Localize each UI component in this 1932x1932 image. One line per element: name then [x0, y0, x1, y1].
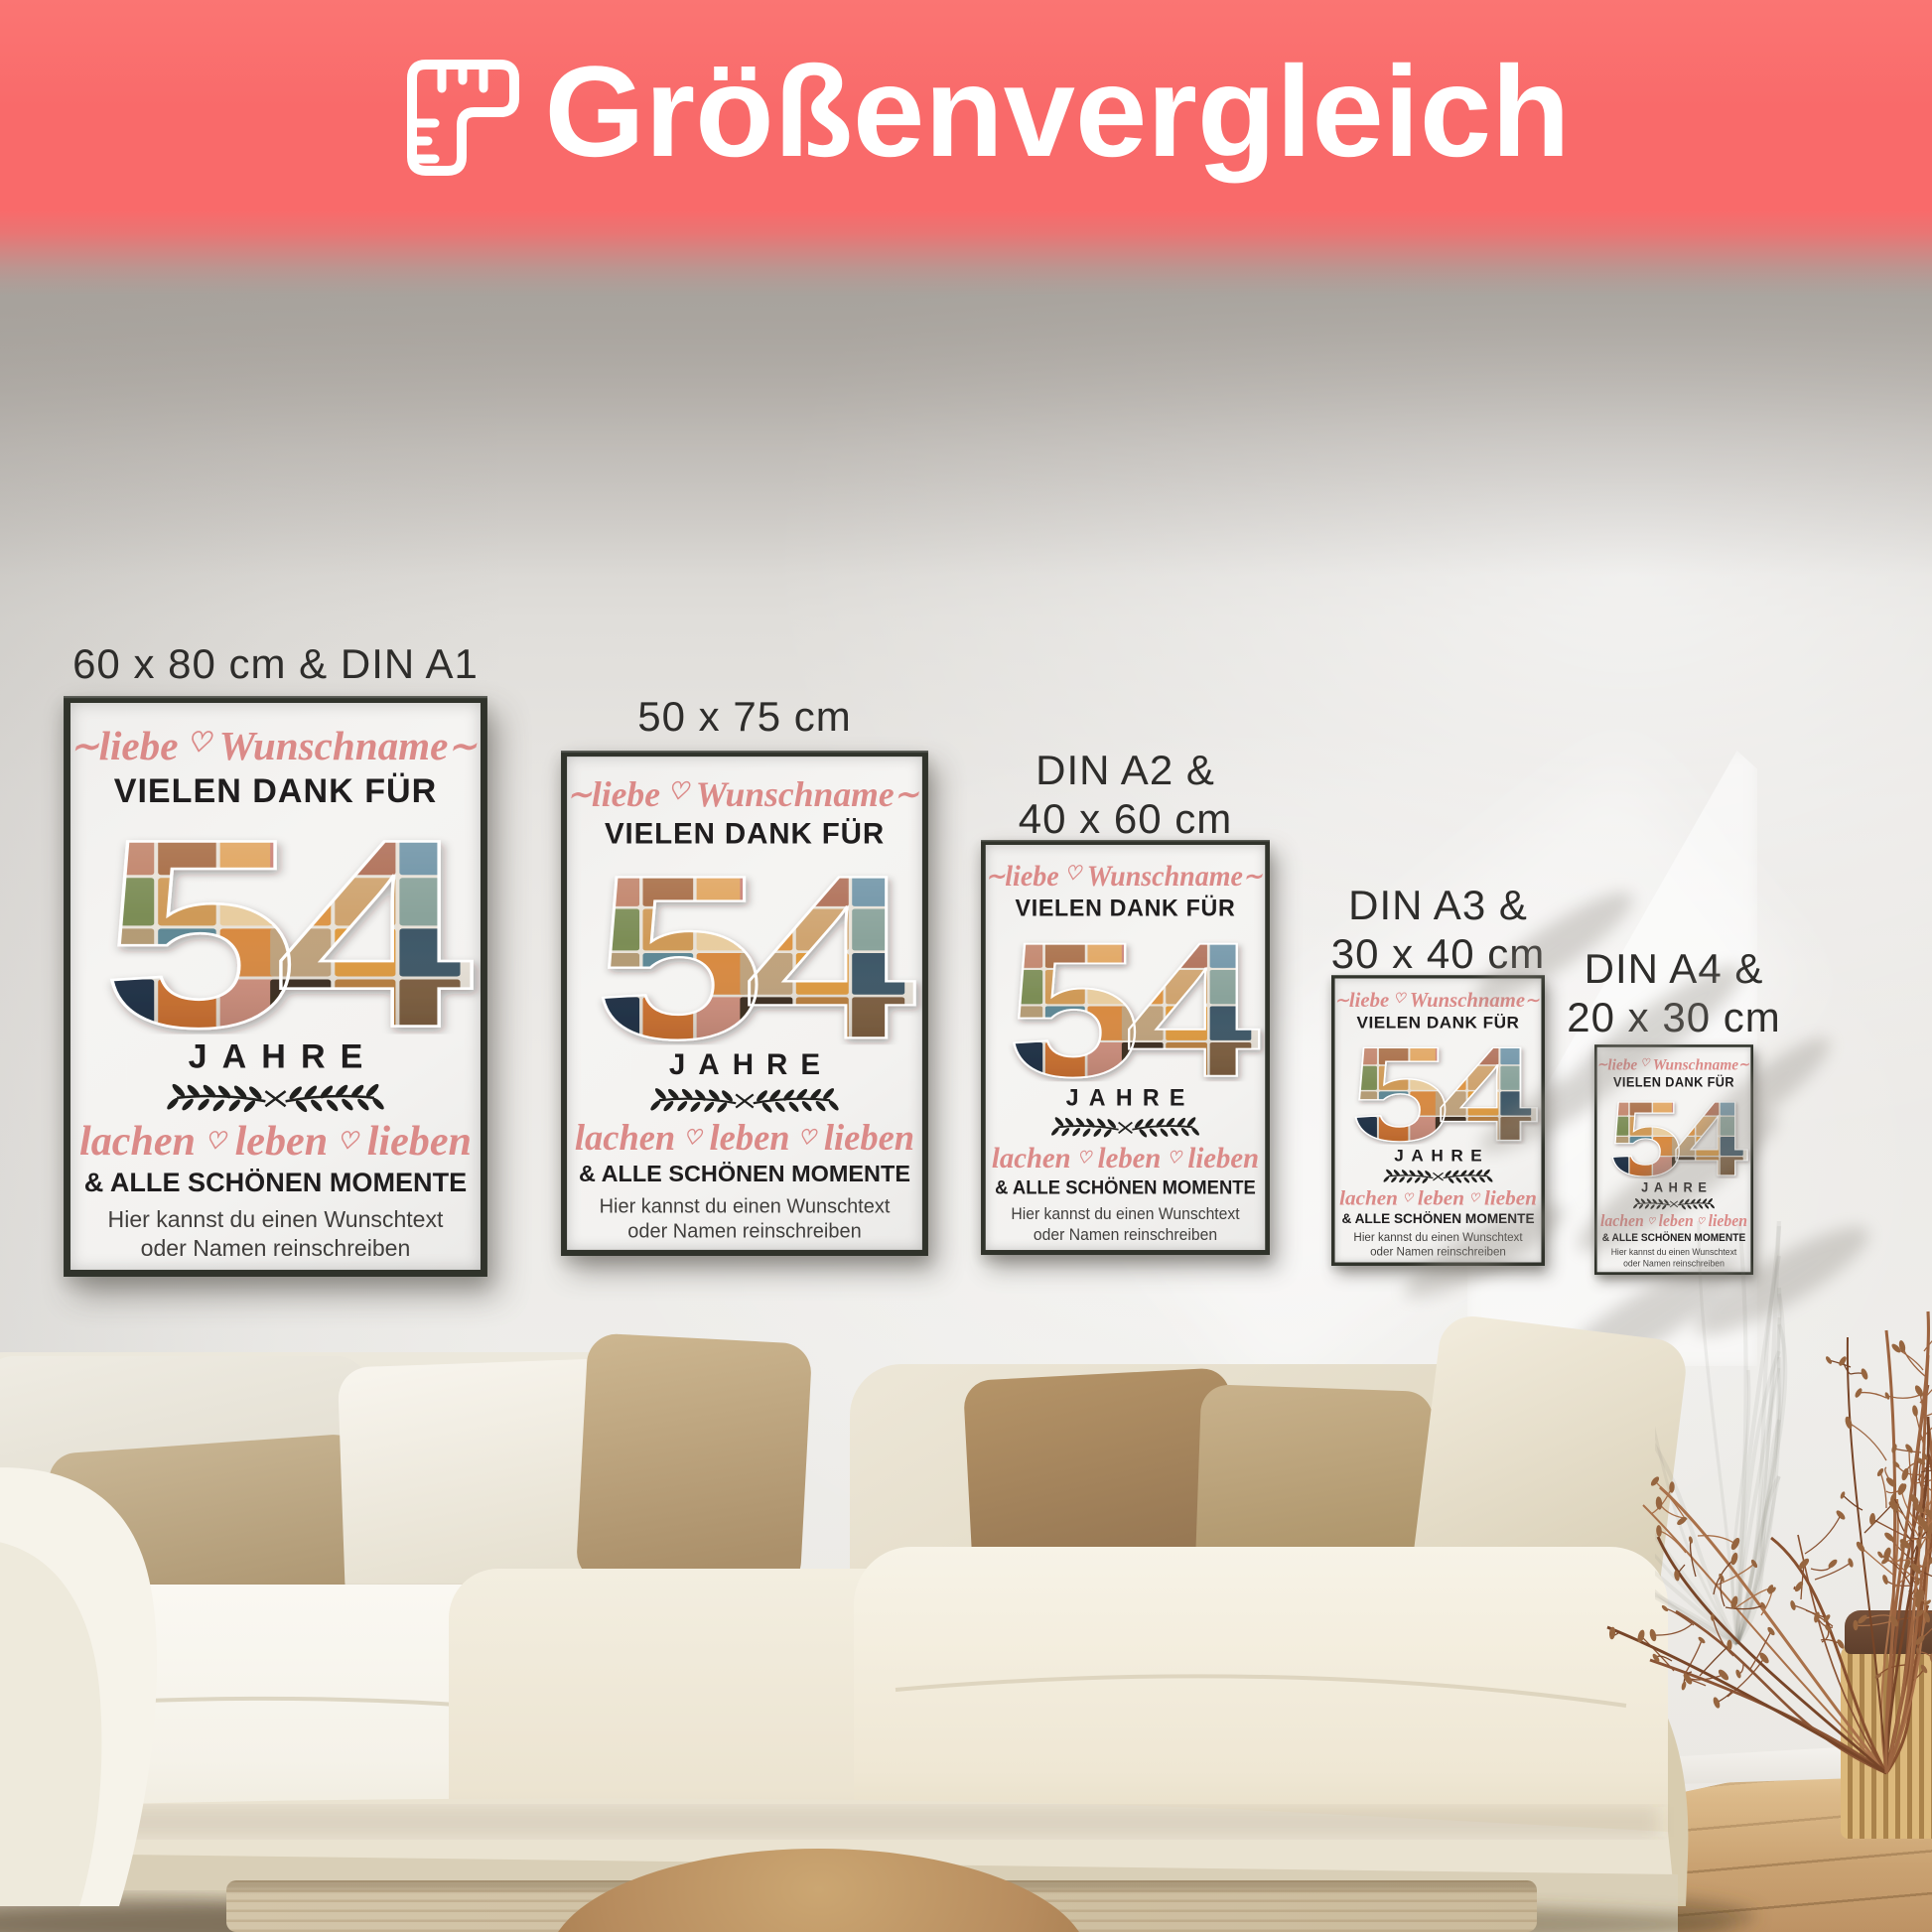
svg-text:54: 54	[101, 819, 476, 1034]
svg-text:54: 54	[594, 858, 918, 1044]
svg-text:54: 54	[1007, 928, 1260, 1082]
